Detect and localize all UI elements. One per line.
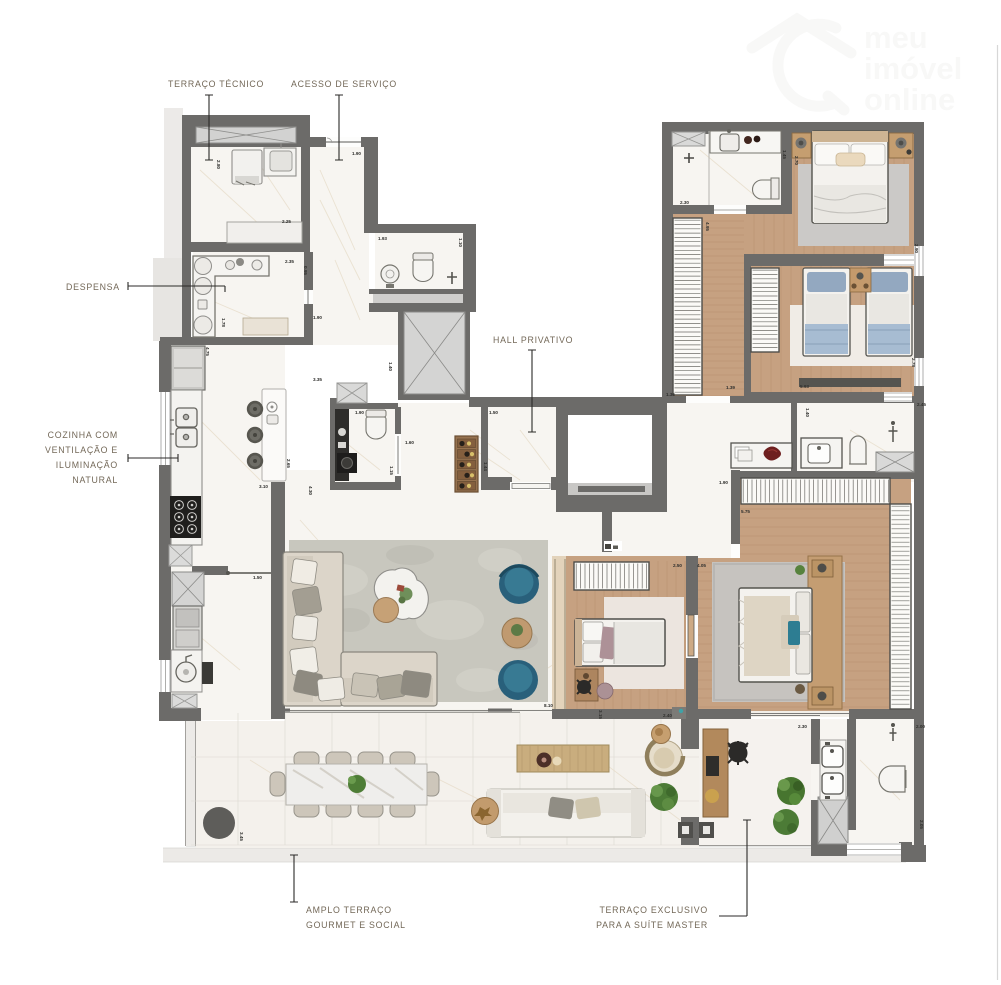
svg-text:2.05: 2.05 [919, 820, 924, 829]
svg-text:NATURAL: NATURAL [72, 475, 118, 485]
svg-text:1.93: 1.93 [378, 236, 387, 241]
svg-text:ILUMINAÇÃO: ILUMINAÇÃO [56, 460, 118, 470]
svg-text:2.35: 2.35 [285, 259, 294, 264]
svg-text:2.00: 2.00 [916, 724, 925, 729]
svg-text:3.45: 3.45 [239, 832, 244, 841]
svg-text:AMPLO TERRAÇO: AMPLO TERRAÇO [306, 905, 392, 915]
svg-text:2.70: 2.70 [794, 156, 799, 165]
svg-text:5.93: 5.93 [800, 384, 809, 389]
svg-text:2.80: 2.80 [216, 160, 221, 169]
svg-text:2.30: 2.30 [680, 200, 689, 205]
svg-text:1.44: 1.44 [483, 462, 488, 471]
svg-text:3.10: 3.10 [259, 484, 268, 489]
svg-text:TERRAÇO TÉCNICO: TERRAÇO TÉCNICO [168, 79, 264, 89]
svg-text:1.60: 1.60 [405, 440, 414, 445]
svg-text:2.45: 2.45 [917, 402, 926, 407]
svg-text:4.75: 4.75 [205, 347, 210, 356]
svg-text:1.50: 1.50 [253, 575, 262, 580]
svg-text:1.40: 1.40 [388, 362, 393, 371]
svg-text:meu: meu [864, 20, 928, 55]
svg-text:2.65: 2.65 [286, 459, 291, 468]
svg-text:1.45: 1.45 [782, 150, 787, 159]
svg-text:2.78: 2.78 [911, 358, 916, 367]
svg-text:2.40: 2.40 [663, 713, 672, 718]
svg-text:2.30: 2.30 [798, 724, 807, 729]
svg-text:1.15: 1.15 [389, 466, 394, 475]
svg-text:imóvel: imóvel [864, 51, 962, 86]
svg-text:1.90: 1.90 [355, 410, 364, 415]
svg-text:DESPENSA: DESPENSA [66, 282, 120, 292]
svg-text:1.90: 1.90 [352, 151, 361, 156]
svg-text:1.90: 1.90 [719, 480, 728, 485]
svg-text:4.05: 4.05 [697, 563, 706, 568]
svg-text:3.15: 3.15 [598, 710, 603, 719]
svg-text:1.10: 1.10 [458, 238, 463, 247]
svg-text:1.78: 1.78 [221, 318, 226, 327]
svg-text:online: online [864, 82, 955, 117]
svg-text:0.95: 0.95 [303, 266, 308, 275]
svg-text:VENTILAÇÃO E: VENTILAÇÃO E [45, 445, 118, 455]
svg-text:2.25: 2.25 [282, 219, 291, 224]
svg-text:GOURMET E SOCIAL: GOURMET E SOCIAL [306, 920, 406, 930]
svg-text:COZINHA COM: COZINHA COM [48, 430, 118, 440]
svg-text:1.39: 1.39 [726, 385, 735, 390]
svg-text:HALL PRIVATIVO: HALL PRIVATIVO [493, 335, 573, 345]
svg-text:2.90: 2.90 [914, 244, 919, 253]
svg-text:1.50: 1.50 [489, 410, 498, 415]
svg-text:3.35: 3.35 [313, 377, 322, 382]
svg-text:PARA A SUÍTE MASTER: PARA A SUÍTE MASTER [596, 920, 708, 930]
svg-text:4.95: 4.95 [705, 222, 710, 231]
svg-text:1.90: 1.90 [313, 315, 322, 320]
svg-text:8.10: 8.10 [544, 703, 553, 708]
svg-text:TERRAÇO EXCLUSIVO: TERRAÇO EXCLUSIVO [599, 905, 708, 915]
svg-text:5.75: 5.75 [741, 509, 750, 514]
svg-text:2.50: 2.50 [673, 563, 682, 568]
svg-text:1.40: 1.40 [805, 408, 810, 417]
svg-text:1.36: 1.36 [666, 392, 675, 397]
svg-text:ACESSO DE SERVIÇO: ACESSO DE SERVIÇO [291, 79, 397, 89]
svg-text:4.30: 4.30 [308, 486, 313, 495]
